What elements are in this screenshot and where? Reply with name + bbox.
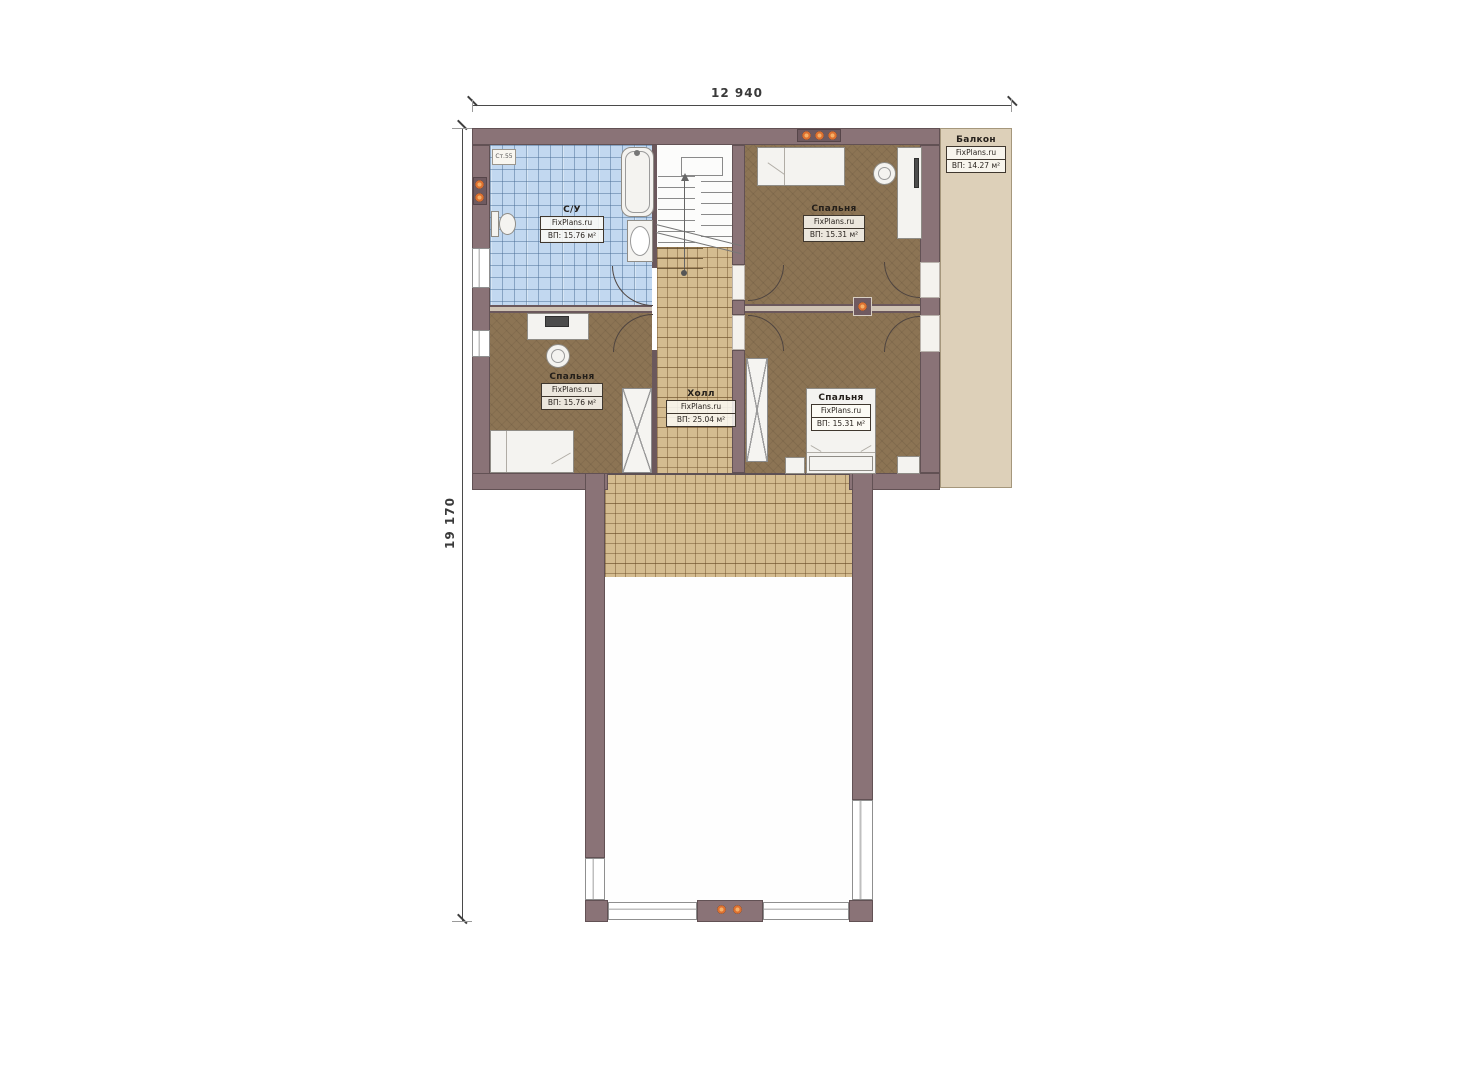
door-opening-bedroom-top xyxy=(732,265,745,300)
wall-ext-corner-right xyxy=(849,900,873,922)
wall-top xyxy=(472,128,940,145)
void-area xyxy=(605,577,852,902)
wall-right xyxy=(920,145,940,473)
printer-icon xyxy=(545,316,569,327)
toilet-tank xyxy=(491,211,499,237)
bed-bottom-blanket-line xyxy=(807,452,875,453)
room-name: Спальня xyxy=(541,371,603,383)
room-info-box: FixPlans.ru ВП: 25.04 м² xyxy=(666,400,736,427)
window-ext-bottom-right xyxy=(763,902,849,920)
dimension-left-line xyxy=(462,128,463,922)
wall-hall-2 xyxy=(732,300,745,315)
room-area: ВП: 15.76 м² xyxy=(541,229,603,242)
lamp-icon xyxy=(475,180,484,189)
balcony-floor xyxy=(940,128,1012,488)
room-name: Балкон xyxy=(946,134,1006,146)
window-ext-right xyxy=(852,800,873,900)
room-area: ВП: 15.76 м² xyxy=(542,396,602,409)
balcony-door-top xyxy=(920,262,940,298)
toilet-icon xyxy=(499,213,516,235)
nightstand-left-icon xyxy=(785,457,805,474)
room-info-box: FixPlans.ru ВП: 15.76 м² xyxy=(541,383,603,410)
bed-bottom-headboard xyxy=(809,456,873,471)
wardrobe-bottom-icon xyxy=(746,358,768,462)
lamp-icon xyxy=(802,131,811,140)
room-name: Спальня xyxy=(803,203,865,215)
room-info-box: FixPlans.ru ВП: 15.31 м² xyxy=(811,404,871,431)
hall-floor-lower xyxy=(605,473,852,577)
room-name: Спальня xyxy=(811,392,871,404)
room-brand: FixPlans.ru xyxy=(667,401,735,413)
wall-ext-left xyxy=(585,473,605,858)
floor-plan: Ст.55 С/У FixPlans.ru ВП: 15.76 xyxy=(0,0,1474,1080)
room-brand: FixPlans.ru xyxy=(542,384,602,396)
room-label-bedroom-top: Спальня FixPlans.ru ВП: 15.31 м² xyxy=(803,203,865,242)
partition-bathroom-bedroom xyxy=(490,305,652,313)
room-area: ВП: 15.31 м² xyxy=(804,228,864,241)
lamp-icon xyxy=(815,131,824,140)
room-info-box: FixPlans.ru ВП: 14.27 м² xyxy=(946,146,1006,173)
wall-hall-1 xyxy=(732,145,745,265)
sink-bowl xyxy=(630,226,650,256)
room-info-box: FixPlans.ru ВП: 15.76 м² xyxy=(540,216,604,243)
room-brand: FixPlans.ru xyxy=(541,217,603,229)
bed-left-pillow-line xyxy=(506,431,507,472)
bathtub-inner xyxy=(625,151,650,213)
dimension-ext-line xyxy=(452,921,472,922)
dimension-ext-line xyxy=(1011,99,1012,112)
partition-bedroom-hall xyxy=(652,350,657,473)
nightstand-right-icon xyxy=(897,456,920,474)
room-label-balcony: Балкон FixPlans.ru ВП: 14.27 м² xyxy=(946,134,1006,173)
room-label-bathroom: С/У FixPlans.ru ВП: 15.76 м² xyxy=(540,204,604,243)
dimension-ext-line xyxy=(472,99,473,112)
bathtub-faucet-icon xyxy=(634,150,640,156)
room-brand: FixPlans.ru xyxy=(812,405,870,417)
wardrobe-left-icon xyxy=(622,388,652,473)
dimension-top-line xyxy=(472,105,1012,106)
window-ext-left xyxy=(585,858,605,900)
window-bathroom xyxy=(472,248,490,288)
stamp-label: Ст.55 xyxy=(492,149,516,165)
room-area: ВП: 14.27 м² xyxy=(947,159,1005,172)
lamp-icon xyxy=(733,905,742,914)
office-chair-top-inner xyxy=(878,167,891,180)
window-bedroom-left xyxy=(472,330,490,357)
bed-left-icon xyxy=(490,430,574,473)
room-name: Холл xyxy=(666,388,736,400)
bed-top-icon xyxy=(757,147,845,186)
stair-flight-right xyxy=(701,181,732,243)
wall-ext-right xyxy=(852,473,873,800)
partition-bedrooms xyxy=(745,304,920,313)
stair-lower-steps xyxy=(657,248,703,278)
lamp-icon xyxy=(828,131,837,140)
dimension-top-label: 12 940 xyxy=(672,86,802,100)
door-opening-bedroom-bottom xyxy=(732,315,745,350)
room-brand: FixPlans.ru xyxy=(947,147,1005,159)
bed-top-pillow-line xyxy=(784,148,785,185)
hall-floor-upper xyxy=(657,247,732,473)
balcony-door-bottom xyxy=(920,315,940,352)
stair-arrow-icon xyxy=(681,173,689,181)
room-brand: FixPlans.ru xyxy=(804,216,864,228)
dimension-left-label: 19 170 xyxy=(443,468,457,578)
office-chair-left-inner xyxy=(551,349,565,363)
monitor-icon xyxy=(914,158,919,188)
room-info-box: FixPlans.ru ВП: 15.31 м² xyxy=(803,215,865,242)
wall-ext-corner-left xyxy=(585,900,608,922)
lamp-icon xyxy=(717,905,726,914)
room-area: ВП: 25.04 м² xyxy=(667,413,735,426)
room-name: С/У xyxy=(540,204,604,216)
room-label-hall: Холл FixPlans.ru ВП: 25.04 м² xyxy=(666,388,736,427)
window-ext-bottom-left xyxy=(608,902,697,920)
room-label-bedroom-left: Спальня FixPlans.ru ВП: 15.76 м² xyxy=(541,371,603,410)
lamp-icon xyxy=(858,302,867,311)
lamp-icon xyxy=(475,193,484,202)
dimension-ext-line xyxy=(452,128,472,129)
room-label-bedroom-bottom: Спальня FixPlans.ru ВП: 15.31 м² xyxy=(811,392,871,431)
stair-flight-left xyxy=(658,176,695,246)
wall-ext-bottom-center xyxy=(697,900,763,922)
room-area: ВП: 15.31 м² xyxy=(812,417,870,430)
